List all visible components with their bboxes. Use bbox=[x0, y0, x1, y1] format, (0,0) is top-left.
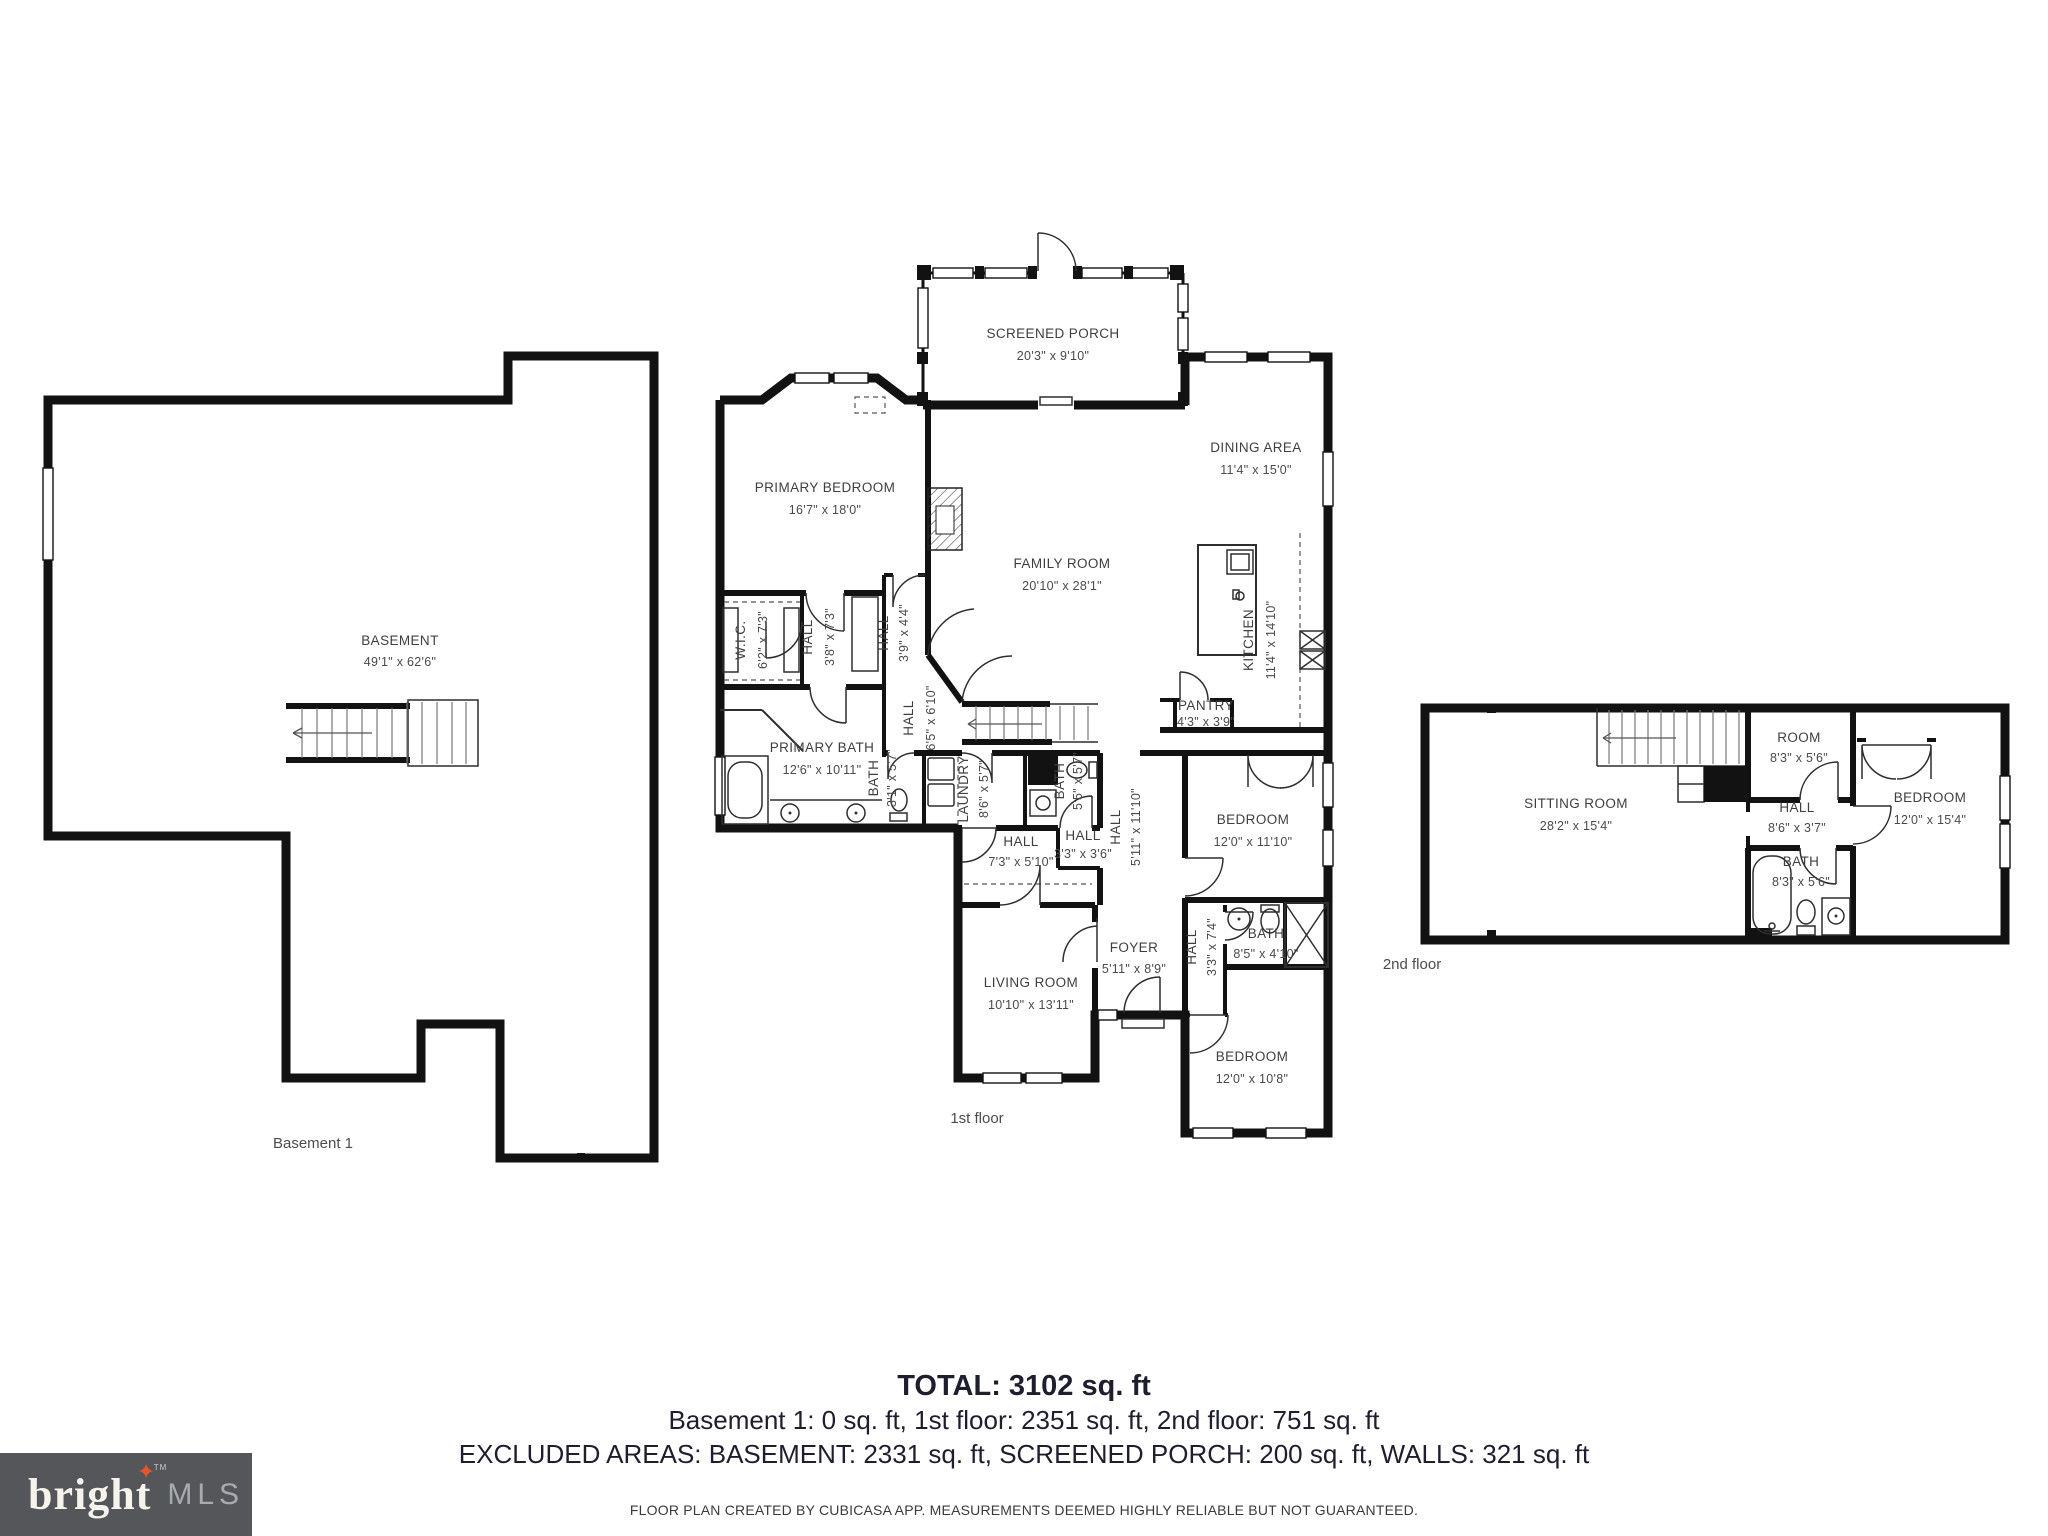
room-label: BATH bbox=[866, 760, 881, 797]
room-label: DINING AREA bbox=[1210, 440, 1301, 455]
ceiling-feature bbox=[855, 397, 885, 413]
room-dims: 8'6" x 3'7" bbox=[1768, 821, 1826, 835]
room-dims: 20'10" x 28'1" bbox=[1022, 579, 1102, 593]
logo-brand-wrap: bright ✦ TM bbox=[28, 1473, 151, 1517]
room-dims: 8'3" x 5'6" bbox=[1770, 751, 1828, 765]
stair-direction-arrow bbox=[1603, 733, 1676, 743]
room-dims: 5'11" x 8'9" bbox=[1102, 962, 1166, 976]
room-dims: 12'0" x 10'8" bbox=[1216, 1072, 1288, 1086]
screened-porch bbox=[917, 233, 1188, 406]
basement-floor-label: Basement 1 bbox=[273, 1135, 353, 1152]
room-label: HALL bbox=[901, 700, 916, 735]
fireplace bbox=[928, 488, 962, 550]
room-dims: 8'3" x 5'6" bbox=[1772, 875, 1830, 889]
room-label: SITTING ROOM bbox=[1524, 796, 1628, 811]
room-label: LAUNDRY bbox=[956, 755, 971, 822]
first-floor-label: 1st floor bbox=[950, 1110, 1003, 1127]
logo-mls-text: MLS bbox=[167, 1478, 244, 1512]
room-label: BEDROOM bbox=[1217, 812, 1290, 827]
room-label: PANTRY bbox=[1178, 698, 1234, 713]
room-dims: 3'8" x 7'3" bbox=[823, 608, 837, 666]
room-dims: 12'6" x 10'11" bbox=[783, 763, 862, 777]
room-dims: 6'2" x 7'3" bbox=[756, 611, 770, 669]
area-summary: TOTAL: 3102 sq. ft Basement 1: 0 sq. ft,… bbox=[0, 1372, 2048, 1518]
brightmls-logo: bright ✦ TM MLS bbox=[0, 1453, 252, 1536]
second-floor-plan: SITTING ROOM 28'2" x 15'4" ROOM 8'3" x 5… bbox=[1383, 705, 2010, 973]
total-area: TOTAL: 3102 sq. ft bbox=[0, 1372, 2048, 1401]
room-label: HALL bbox=[1065, 828, 1100, 843]
room-label: BASEMENT bbox=[361, 633, 438, 648]
room-dims: 3'3" x 7'4" bbox=[1205, 918, 1219, 976]
disclaimer: FLOOR PLAN CREATED BY CUBICASA APP. MEAS… bbox=[0, 1502, 2048, 1518]
porch-threshold bbox=[1040, 397, 1072, 405]
room-dims: 49'1" x 62'6" bbox=[364, 655, 436, 669]
room-dims: 3'9" x 4'4" bbox=[897, 604, 911, 662]
room-dims: 11'4" x 14'10" bbox=[1264, 601, 1278, 680]
second-floor-stairs bbox=[1597, 708, 1750, 802]
basement-stairs bbox=[286, 700, 478, 766]
stair-direction-arrow bbox=[968, 719, 1042, 729]
room-label: HALL bbox=[1779, 800, 1814, 815]
room-label: BATH bbox=[1052, 763, 1067, 800]
excluded-areas: EXCLUDED AREAS: BASEMENT: 2331 sq. ft, S… bbox=[0, 1440, 2048, 1469]
kitchen-counter bbox=[1300, 533, 1325, 728]
room-label: KITCHEN bbox=[1241, 609, 1256, 671]
room-dims: 20'3" x 9'10" bbox=[1017, 349, 1089, 363]
laundry-machines bbox=[928, 757, 958, 826]
room-label: BEDROOM bbox=[1216, 1049, 1289, 1064]
basement-plan: BASEMENT 49'1" x 62'6" Basement 1 bbox=[43, 352, 654, 1160]
room-label: BATH bbox=[1248, 926, 1285, 941]
room-label: LIVING ROOM bbox=[984, 975, 1078, 990]
room-label: SCREENED PORCH bbox=[986, 326, 1119, 341]
first-floor-stairs bbox=[968, 706, 1088, 740]
room-label: HALL bbox=[1184, 929, 1199, 964]
first-floor-plan: SCREENED PORCH 20'3" x 9'10" PRIMARY BED… bbox=[715, 233, 1333, 1138]
room-label: HALL bbox=[1108, 809, 1123, 844]
room-label: FAMILY ROOM bbox=[1014, 556, 1111, 571]
wall-tick bbox=[577, 352, 585, 359]
room-label: BEDROOM bbox=[1894, 790, 1967, 805]
room-dims: 11'4" x 15'0" bbox=[1220, 463, 1292, 477]
basement-window bbox=[43, 468, 53, 560]
room-dims: 3'3" x 3'6" bbox=[1054, 847, 1112, 861]
floor-areas: Basement 1: 0 sq. ft, 1st floor: 2351 sq… bbox=[0, 1406, 2048, 1435]
room-label: BATH bbox=[1783, 854, 1820, 869]
room-dims: 4'3" x 3'9" bbox=[1177, 715, 1235, 729]
front-step bbox=[1122, 1019, 1164, 1028]
room-dims: 8'5" x 4'10" bbox=[1233, 947, 1298, 961]
room-label: W.I.C. bbox=[733, 620, 748, 659]
wall-tick bbox=[577, 1153, 585, 1160]
room-dims: 3'1" x 5'7" bbox=[885, 749, 899, 807]
room-label: HALL bbox=[876, 615, 891, 650]
room-label: ROOM bbox=[1777, 730, 1821, 745]
room-label: FOYER bbox=[1110, 940, 1159, 955]
logo-star-icon: ✦ bbox=[137, 1461, 155, 1483]
room-label: HALL bbox=[1003, 834, 1038, 849]
room-dims: 28'2" x 15'4" bbox=[1540, 819, 1612, 833]
room-dims: 12'0" x 15'4" bbox=[1894, 813, 1966, 827]
room-dims: 8'6" x 5'7" bbox=[977, 760, 991, 818]
room-dims: 5'5" x 5'7" bbox=[1071, 752, 1085, 810]
room-label: PRIMARY BATH bbox=[770, 740, 875, 755]
room-dims: 12'0" x 11'10" bbox=[1214, 835, 1293, 849]
floorplan-sheet: BASEMENT 49'1" x 62'6" Basement 1 bbox=[0, 0, 2048, 1536]
hall-closet bbox=[852, 597, 878, 671]
room-dims: 16'7" x 18'0" bbox=[789, 503, 861, 517]
room-label: PRIMARY BEDROOM bbox=[755, 480, 896, 495]
porch-door bbox=[1038, 233, 1076, 271]
room-dims: 5'11" x 11'10" bbox=[1129, 788, 1143, 866]
wall-tick bbox=[1487, 705, 1496, 713]
wall-tick bbox=[1487, 930, 1496, 938]
second-floor-label: 2nd floor bbox=[1383, 956, 1441, 973]
room-dims: 7'3" x 5'10" bbox=[988, 855, 1053, 869]
room-dims: 10'10" x 13'11" bbox=[988, 998, 1074, 1012]
logo-brand-text: bright bbox=[28, 1470, 151, 1519]
room-dims: 6'5" x 6'10" bbox=[924, 685, 938, 750]
room-label: HALL bbox=[800, 619, 815, 654]
logo-tm: TM bbox=[154, 1463, 168, 1472]
floorplan-canvas: BASEMENT 49'1" x 62'6" Basement 1 bbox=[0, 0, 2048, 1536]
